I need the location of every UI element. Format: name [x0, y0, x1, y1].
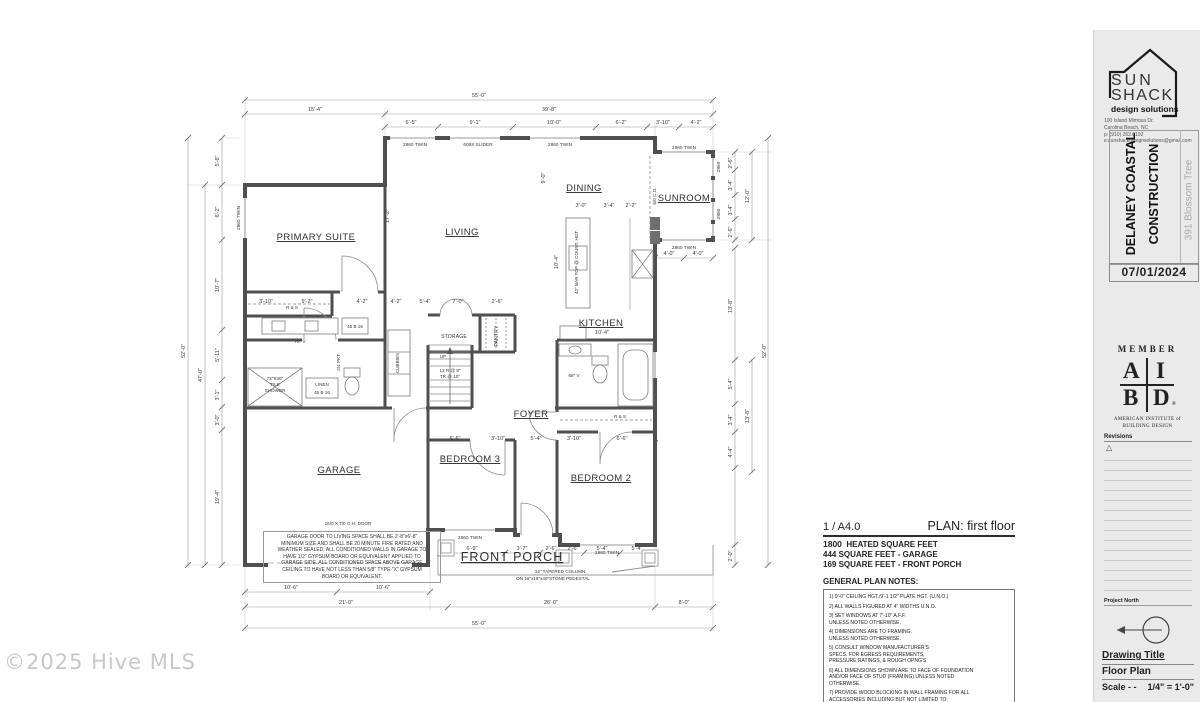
dim-label: 5'-4"	[597, 546, 608, 552]
dim-label: 3'-4"	[604, 203, 615, 209]
revision-triangle-icon: △	[1106, 443, 1112, 452]
dim-label: 19'-4"	[215, 490, 221, 504]
client-name: DELANEY COASTAL	[1124, 133, 1138, 255]
dim-label: 3'-10"	[491, 436, 505, 442]
room-label-living: LIVING	[445, 227, 479, 238]
dim-label: 2'-6"	[568, 546, 579, 552]
aibd-org-line: BUILDING DESIGN	[1094, 423, 1200, 430]
bartop-label: 42" BAR TOP @ COUNT. HGT.	[574, 230, 579, 294]
dim-label: 55'-0"	[472, 621, 486, 627]
north-arrow-icon	[1116, 612, 1180, 648]
dim-label: 6'-9"	[467, 546, 478, 552]
project-north-label: Project North	[1104, 598, 1192, 606]
garage-sqft: 444 SQUARE FEET - GARAGE	[823, 550, 1015, 560]
dim-label: 2'-0"	[728, 550, 734, 561]
room-label-bedroom3: BEDROOM 3	[440, 454, 501, 465]
client-name: CONSTRUCTION	[1147, 144, 1161, 245]
pocket-door-label: 2/4 PKT.	[336, 353, 341, 370]
plan-title: PLAN: first floor	[927, 519, 1015, 533]
room-label-sunroom: SUNROOM	[658, 193, 710, 204]
dim-label: 6'-2"	[616, 120, 627, 126]
dim-label: 17'-2"	[385, 209, 391, 223]
garage-note: GARAGE DOOR TO LIVING SPACE SHALL BE 2'-…	[263, 531, 441, 583]
dim-label: 13'-8"	[745, 409, 751, 423]
dim-label: 39'-8"	[542, 107, 556, 113]
dim-label: 55'-0"	[472, 93, 486, 99]
plan-note: 6) ALL DIMENSIONS SHOWN ARE TO FACE OF F…	[829, 668, 1009, 688]
heated-sqft-label: HEATED SQUARE FEET	[846, 540, 937, 549]
cased-opening-label: 6/0 C.O.	[652, 187, 657, 204]
dim-label: 21'-0"	[339, 600, 353, 606]
window-label: 2860	[716, 208, 722, 219]
vanity-label: 68" V	[568, 373, 580, 378]
column-note: 14" TAPERED COLUMN	[535, 569, 585, 574]
dim-label: 3'-1"	[215, 389, 221, 400]
dim-label: 7'-0"	[453, 299, 464, 305]
dim-label: 5'-4"	[632, 546, 643, 552]
garage-door-label: 16/0 X 7/0 O.H. DOOR	[325, 521, 372, 526]
dim-label: 6'-5"	[406, 120, 417, 126]
aibd-letter: I	[1156, 358, 1165, 384]
heated-sqft-value: 1800	[823, 539, 842, 549]
scale-row: Scale - - 1/4" = 1'-0"	[1102, 679, 1194, 692]
aibd-logo: A I B D ®	[1120, 358, 1174, 412]
registered-mark: ®	[1172, 402, 1176, 407]
window-label: 2860	[716, 161, 722, 172]
column-note: ON 16"x16"x40"STONE PEDESTAL	[516, 576, 590, 581]
aibd-letter: B	[1123, 385, 1138, 411]
dim-label: 3'-10"	[656, 120, 670, 126]
dim-label: 4'-2"	[391, 299, 402, 305]
plan-info-block: 1 / A4.0 PLAN: first floor 1800 HEATED S…	[823, 519, 1015, 702]
closet-label: R & S	[286, 305, 298, 310]
logo-subtext: design solutions	[1111, 104, 1179, 114]
room-label-storage: STORAGE	[441, 334, 467, 340]
dim-label: 4'-2"	[357, 299, 368, 305]
window-label: 6068 SLIDER	[463, 142, 493, 148]
address-line: 100 Island Mimosa Dr.	[1104, 118, 1198, 125]
aibd-org-line: AMERICAN INSTITUTE of	[1094, 416, 1200, 423]
scale-label: Scale - -	[1102, 682, 1137, 692]
room-label-pantry: PANTRY	[494, 325, 500, 346]
dim-label: 3'-4"	[728, 414, 734, 425]
dim-label: 13'-8"	[728, 299, 734, 313]
dim-label: 12'-0"	[745, 189, 751, 203]
aibd-letter: A	[1123, 358, 1140, 384]
dim-label: 3'-7"	[517, 546, 528, 552]
dim-label: 2'-6"	[492, 299, 503, 305]
plan-note: 3) SET WINDOWS AT 7'-10" A.F.F. UNLESS N…	[829, 613, 1009, 626]
date: 07/01/2024	[1109, 263, 1199, 282]
logo-text: SHACK	[1111, 87, 1174, 104]
stairs-label: 13 R @ 8"	[439, 368, 460, 373]
dim-label: 3'-4"	[728, 204, 734, 215]
dim-label: 5'-4"	[531, 436, 542, 442]
window-label: 2860 TWIN	[458, 535, 483, 541]
dim-label: 2'-6"	[728, 226, 734, 237]
room-label-garage: GARAGE	[317, 465, 360, 476]
dim-label: 4'-4"	[728, 446, 734, 457]
cabinet-label: 45 B 16	[314, 390, 330, 395]
window-label: 2860 TWIN	[548, 142, 573, 148]
room-label-bedroom2: BEDROOM 2	[571, 473, 632, 484]
dim-label: 4'-2"	[691, 120, 702, 126]
sheet-reference: 1 / A4.0	[823, 521, 927, 533]
floor-plan-sheet: PRIMARY SUITE LIVING DINING SUNROOM KITC…	[0, 0, 1200, 702]
shower-label: SHOWER	[265, 388, 286, 393]
dim-label: 6'-2"	[215, 206, 221, 217]
vanity-label: 72" V	[294, 339, 306, 344]
dim-label: 8'-0"	[679, 600, 690, 606]
general-plan-notes: 1) 9'-0" CEILING HGT./9'-1 1/2" PLATE HG…	[823, 589, 1015, 702]
dim-label: 4'-0"	[693, 251, 704, 257]
dim-label: 3'-10"	[259, 299, 273, 305]
aibd-org: AMERICAN INSTITUTE of BUILDING DESIGN	[1094, 416, 1200, 430]
dim-label: 6'-6"	[617, 436, 628, 442]
cubbies-label: CUBBIES	[395, 353, 400, 373]
room-label-porch: FRONT PORCH	[461, 550, 563, 564]
shower-label: TILE	[270, 382, 280, 387]
dim-label: 52'-0"	[181, 344, 187, 358]
dim-label: 6'-6"	[450, 436, 461, 442]
dim-label: 9'-1"	[470, 120, 481, 126]
dim-label: 3'-4"	[728, 179, 734, 190]
window-label: 2860 TWIN	[236, 205, 242, 230]
porch-sqft: 169 SQUARE FEET - FRONT PORCH	[823, 560, 1015, 570]
member-label: MEMBER	[1094, 344, 1200, 354]
dim-label: 9'-0"	[541, 172, 547, 183]
dim-label: 26'-0"	[544, 600, 558, 606]
dim-label: 3'-0"	[215, 414, 221, 425]
window-label: 2860 TWIN	[403, 142, 428, 148]
room-label-foyer: FOYER	[514, 409, 549, 420]
room-label-kitchen: KITCHEN	[579, 318, 624, 329]
notes-title: GENERAL PLAN NOTES:	[823, 577, 1015, 586]
dim-label: 52'-0"	[762, 344, 768, 358]
stairs-label: TR @ 10"	[440, 374, 460, 379]
plan-note: 7) PROVIDE WOOD BLOCKING IN WALL FRAMING…	[829, 690, 1009, 702]
plan-note: 5) CONSULT WINDOW MANUFACTURER'S SPECS. …	[829, 645, 1009, 665]
drawing-title: Floor Plan	[1102, 664, 1194, 677]
scale-value: 1/4" = 1'-0"	[1148, 682, 1194, 692]
watermark: ©2025 Hive MLS	[4, 650, 196, 674]
aibd-divider	[1120, 384, 1174, 386]
drawing-title-label: Drawing Title	[1102, 650, 1194, 661]
shower-label: 72"X36"	[267, 376, 284, 381]
dim-label: 10'-4"	[554, 255, 560, 269]
room-label-primary: PRIMARY SUITE	[277, 232, 356, 243]
dim-label: 9'-2"	[302, 299, 313, 305]
client-divider	[1180, 130, 1181, 263]
dim-label: 2'-2"	[626, 203, 637, 209]
dim-label: 10'-6"	[376, 585, 390, 591]
dim-label: 10'-4"	[595, 330, 609, 336]
stairs-up-label: UP	[440, 354, 446, 359]
dim-label: 5'-11"	[215, 348, 221, 362]
aibd-letter: D	[1153, 385, 1170, 411]
plan-note: 1) 9'-0" CEILING HGT./9'-1 1/2" PLATE HG…	[829, 594, 1009, 601]
dim-label: 5'-4"	[420, 299, 431, 305]
title-block: SUN SHACK design solutions 100 Island Mi…	[1093, 30, 1200, 702]
revision-rows	[1104, 460, 1192, 600]
linen-label: LINEN	[315, 382, 329, 387]
revisions-label: Revisions	[1104, 434, 1192, 442]
dim-label: 3'-0"	[576, 203, 587, 209]
dim-label: 3'-10"	[567, 436, 581, 442]
plan-note: 2) ALL WALLS FIGURED AT 4" WIDTHS U.N.O.	[829, 604, 1009, 611]
dim-label: 15'-4"	[308, 107, 322, 113]
plan-note: 4) DIMENSIONS ARE TO FRAMING. UNLESS NOT…	[829, 629, 1009, 642]
dim-label: 4'-0"	[664, 251, 675, 257]
dim-label: 10'-7"	[215, 278, 221, 292]
closet-label: R & S	[614, 414, 626, 419]
dim-label: 5'-6"	[215, 155, 221, 166]
dim-label: 10'-0"	[547, 120, 561, 126]
project-name: 391 Blossom Tree	[1184, 160, 1195, 241]
room-label-dining: DINING	[566, 183, 602, 194]
cabinet-label: 45 B 16	[347, 324, 363, 329]
window-label: 2860 TWIN	[672, 145, 697, 151]
dim-label: 2'-6"	[728, 157, 734, 168]
dim-label: 10'-6"	[284, 585, 298, 591]
dim-label: 47'-0"	[198, 368, 204, 382]
sunshack-logo: SUN SHACK design solutions	[1100, 38, 1196, 122]
dim-label: 2'-6"	[546, 546, 557, 552]
dim-label: 5'-4"	[728, 378, 734, 389]
